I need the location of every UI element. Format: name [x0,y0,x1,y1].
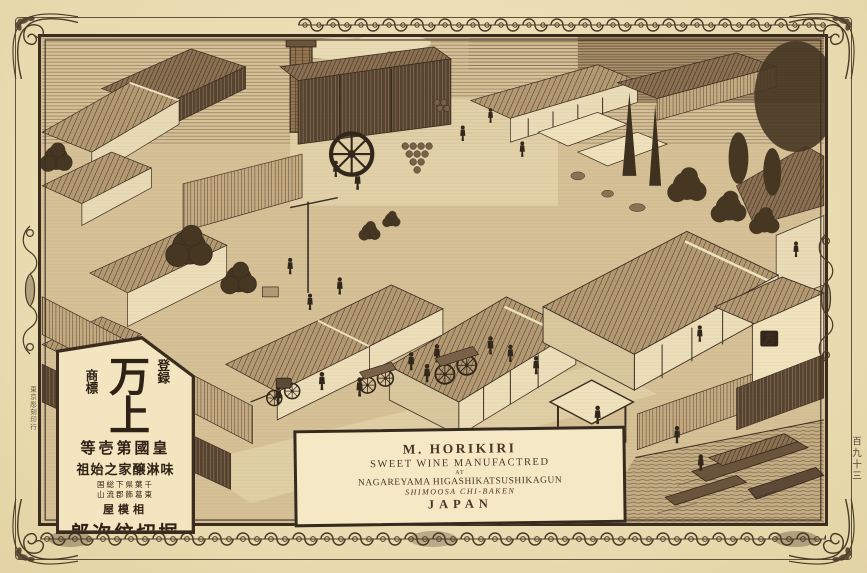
corner-ornament-icon [12,13,78,79]
brand-row: 商標 万上 登録 [82,355,169,433]
page-number: 百九十三 [849,436,860,482]
address-rows: 国総下県葉千 山流郡飾葛東 [97,480,154,500]
trademark-label-right: 登録 [154,359,170,384]
proprietor-name: M. HORIKIRI [403,440,517,458]
print-page: 万 [0,0,867,573]
corner-ornament-icon [789,499,855,565]
country-line: JAPAN [428,497,493,513]
address-row-bottom: 山流郡飾葛東 [97,490,154,500]
shop-name-row: 屋模相 [103,501,148,517]
english-label-box: M. HORIKIRI SWEET WINE MANUFACTRED AT NA… [293,426,626,528]
trademark-label-left: 商標 [82,369,98,394]
printer-credit: 東京彫刻印行 [28,386,35,431]
brand-characters: 万上 [105,355,145,433]
corner-ornament-icon [789,13,855,79]
originator-row: 祖始之家醸淋味 [76,459,174,478]
rank-row: 等壱第國皇 [80,437,170,458]
side-flourish-icon [813,232,839,364]
trademark-panel: 商標 万上 登録 等壱第國皇 祖始之家醸淋味 国総下県葉千 山流郡飾葛東 屋模相… [56,336,195,534]
side-flourish-icon [17,224,43,356]
product-line: SWEET WINE MANUFACTRED [370,457,550,471]
at-line: AT [455,470,464,476]
scroll-band-top [298,16,826,34]
address-line-2: SHIMOOSA CHI-BAKEN [405,486,515,497]
trademark-panel-face: 商標 万上 登録 等壱第國皇 祖始之家醸淋味 国総下県葉千 山流郡飾葛東 屋模相… [59,339,193,532]
address-row-top: 国総下県葉千 [97,480,154,490]
